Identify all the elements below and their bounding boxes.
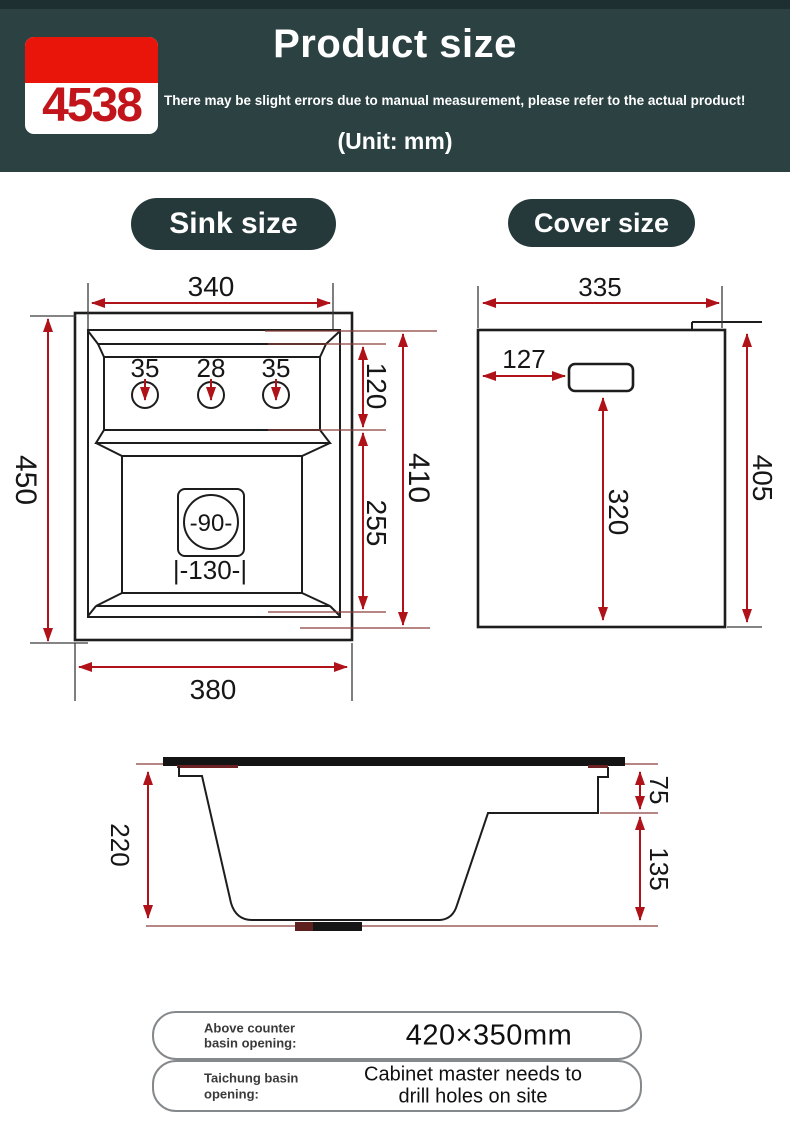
product-size-infographic: 4538 Product size There may be slight er… xyxy=(0,0,790,1132)
dim-335: 335 xyxy=(578,272,621,302)
sink-top-view: 35 28 35 -90- |-130-| 340 450 xyxy=(9,271,437,705)
dim-75: 75 xyxy=(644,776,674,805)
dim-405: 405 xyxy=(747,455,778,502)
note-above-counter-value: 420×350mm xyxy=(394,1019,584,1052)
dim-255: 255 xyxy=(361,500,392,547)
cover-handle xyxy=(569,364,633,391)
drain-stub-left xyxy=(295,922,313,931)
dim-hole-center: 28 xyxy=(197,353,226,383)
dim-450: 450 xyxy=(9,455,42,505)
note-above-counter-label: Above counter basin opening: xyxy=(204,1020,296,1051)
dim-drain-spacing: |-130-| xyxy=(173,555,247,585)
dim-135: 135 xyxy=(644,847,674,890)
drain-stub xyxy=(313,922,362,931)
note-taichung-basin-value: Cabinet master needs to drill holes on s… xyxy=(342,1064,604,1107)
technical-drawing: 35 28 35 -90- |-130-| 340 450 xyxy=(0,0,790,1132)
note-above-counter: Above counter basin opening: 420×350mm xyxy=(152,1011,642,1060)
note-taichung-basin: Taichung basin opening: Cabinet master n… xyxy=(152,1060,642,1112)
sink-profile-outline xyxy=(179,766,608,920)
cover-view: 335 127 320 405 xyxy=(478,272,778,627)
dim-120: 120 xyxy=(361,363,392,410)
cover-outline xyxy=(478,330,725,627)
dim-220: 220 xyxy=(105,823,135,866)
dim-hole-left: 35 xyxy=(131,353,160,383)
dim-320: 320 xyxy=(603,489,634,536)
dim-380: 380 xyxy=(190,674,237,705)
dim-hole-right: 35 xyxy=(262,353,291,383)
note-taichung-basin-label: Taichung basin opening: xyxy=(204,1070,298,1101)
side-profile-view: 220 75 135 xyxy=(105,757,674,931)
dim-drain-diameter: -90- xyxy=(190,510,233,537)
dim-410: 410 xyxy=(402,453,435,503)
dim-340: 340 xyxy=(188,271,235,302)
dim-127: 127 xyxy=(502,344,545,374)
counter-rim-bar xyxy=(163,757,625,766)
